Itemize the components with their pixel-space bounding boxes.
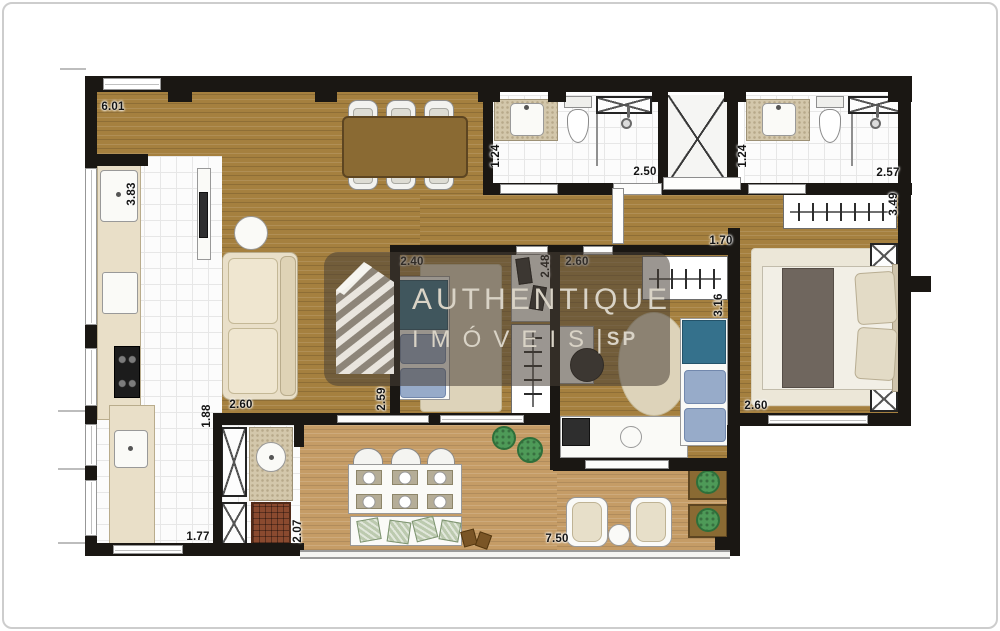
measurement-label: 3.16	[713, 293, 725, 316]
measurement-label: 1.24	[737, 144, 749, 167]
window-left-4	[85, 480, 97, 536]
window-bedroom1-bottom	[440, 415, 524, 423]
faucet-icon	[776, 105, 781, 110]
faucet-icon	[524, 105, 529, 110]
shower-head-icon	[870, 118, 881, 129]
measurement-label: 6.01	[101, 101, 124, 113]
dining-table	[342, 116, 468, 178]
bed2-pillow	[684, 370, 726, 404]
balcony-railing	[300, 550, 730, 559]
measurement-label: 2.07	[292, 519, 304, 542]
measurement-label: 2.57	[876, 167, 899, 179]
sofa-backrest	[280, 256, 296, 396]
place-setting	[427, 494, 453, 509]
barbecue-grill	[251, 502, 291, 545]
master-pillow	[854, 271, 898, 326]
measurement-label: 2.60	[229, 399, 252, 411]
service-cabinet	[221, 427, 247, 497]
dimension-tick	[58, 468, 86, 470]
measurement-label: 2.60	[744, 400, 767, 412]
wall-bottom-service	[186, 543, 304, 556]
floor-plan: 6.01 3.83 1.24 2.50 1.24 2.57 3.49 1.70 …	[0, 0, 1000, 631]
wall-pillar	[168, 76, 192, 102]
refrigerator	[102, 272, 138, 314]
wall-pillar	[548, 76, 566, 102]
place-setting	[427, 470, 453, 485]
wall-bathroom1-shaft	[658, 88, 668, 183]
planter-plant	[696, 470, 720, 494]
master-pillow	[854, 327, 898, 382]
measurement-label: 1.88	[201, 404, 213, 427]
window-left-1	[85, 168, 97, 325]
bench-cushion	[387, 520, 412, 545]
wall-bedroom2-master	[728, 228, 740, 460]
vanity-stool	[620, 426, 642, 448]
bed2-blanket	[682, 320, 726, 364]
wall-service-left	[213, 425, 222, 556]
master-wardrobe	[783, 193, 897, 229]
brand-subtitle: IMÓVEIS|SP	[412, 324, 671, 355]
wall-shaft-bathroom2	[727, 88, 738, 183]
wall-right	[898, 76, 911, 426]
shower-partition	[596, 114, 598, 166]
vanity-monitor	[562, 418, 590, 446]
stove	[114, 346, 140, 398]
window-kitchen-top	[103, 78, 161, 90]
measurement-label: 2.59	[376, 387, 388, 410]
lounge-cushion	[636, 502, 666, 542]
watermark: AUTHENTIQUE IMÓVEIS|SP	[324, 252, 670, 386]
lounge-cushion	[572, 502, 602, 542]
elevator-shaft	[668, 95, 727, 183]
shower-arm-icon	[627, 106, 630, 118]
toilet-tank	[564, 96, 592, 108]
dimension-tick	[60, 68, 86, 70]
measurement-label: 2.50	[633, 166, 656, 178]
faucet-icon	[116, 192, 121, 197]
bench-cushion	[356, 517, 381, 542]
wall-right-pier	[898, 276, 931, 292]
measurement-label: 3.49	[888, 192, 900, 215]
window-master	[768, 415, 868, 424]
service-cabinet	[221, 502, 247, 545]
wall-kitchen-stub	[95, 154, 148, 166]
side-table-outdoor	[608, 524, 630, 546]
bench-cushion	[438, 519, 461, 542]
wall-bathroom1-left	[483, 88, 493, 195]
shower-partition	[851, 114, 853, 166]
balcony-sliding-door	[337, 415, 429, 423]
place-setting	[392, 470, 418, 485]
sofa-cushion	[228, 258, 278, 324]
window-left-2	[85, 348, 97, 406]
measurement-label: 1.77	[186, 531, 209, 543]
potted-plant	[517, 437, 543, 463]
shower-head-icon	[621, 118, 632, 129]
tv-icon	[199, 192, 208, 238]
wall-service-balcony-stub	[294, 425, 304, 447]
place-setting	[392, 494, 418, 509]
balcony-door-bedroom2	[585, 460, 669, 469]
brand-name: AUTHENTIQUE	[412, 283, 671, 317]
brand-logo-icon	[330, 256, 402, 383]
kitchen-peninsula	[109, 405, 155, 545]
measurement-label: 3.83	[126, 182, 138, 205]
sofa-cushion	[228, 328, 278, 394]
bed2-pillow	[684, 408, 726, 442]
shower-arm-icon	[876, 106, 879, 118]
entry-threshold	[663, 177, 741, 190]
toilet-tank	[816, 96, 844, 108]
faucet-icon	[128, 446, 133, 451]
bathroom2-door	[748, 184, 806, 194]
faucet-icon	[269, 455, 274, 460]
side-table	[234, 216, 268, 250]
watermark-text: AUTHENTIQUE IMÓVEIS|SP	[412, 283, 671, 355]
entry-door-leaf	[612, 188, 624, 244]
bathroom1-door	[500, 184, 558, 194]
place-setting	[356, 494, 382, 509]
bed-runner	[782, 268, 834, 388]
measurement-label: 7.50	[545, 533, 568, 545]
window-left-3	[85, 424, 97, 466]
dimension-tick	[58, 410, 86, 412]
potted-plant	[492, 426, 516, 450]
planter-plant	[696, 508, 720, 532]
place-setting	[356, 470, 382, 485]
window-kitchen-bottom	[113, 545, 183, 554]
wall-pillar	[315, 76, 337, 102]
dimension-tick	[58, 542, 86, 544]
measurement-label: 1.70	[709, 235, 732, 247]
bathroom1-cabinet	[596, 96, 652, 114]
measurement-label: 1.24	[490, 144, 502, 167]
